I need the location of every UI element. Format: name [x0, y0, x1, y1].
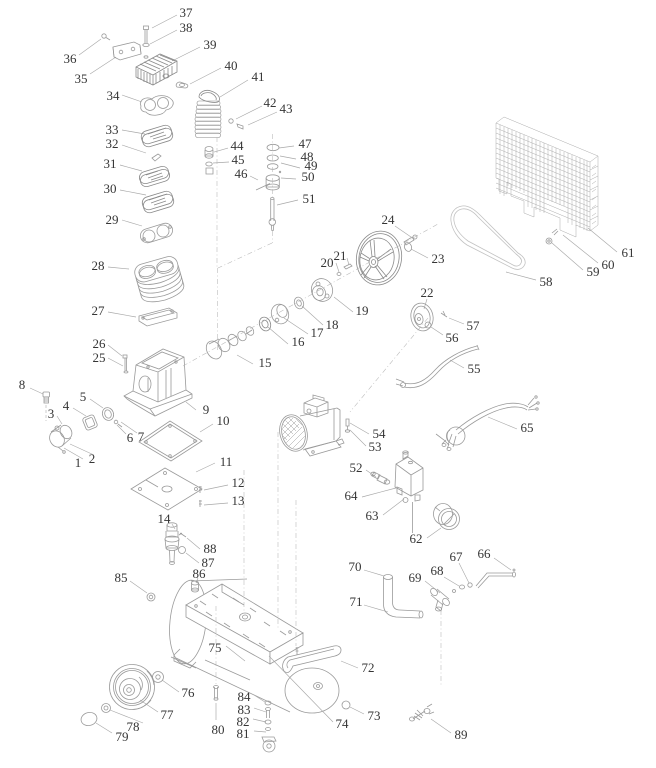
svg-text:38: 38 — [180, 20, 193, 35]
svg-text:10: 10 — [217, 413, 230, 428]
svg-text:69: 69 — [409, 570, 422, 585]
svg-text:52: 52 — [350, 460, 363, 475]
svg-text:9: 9 — [203, 402, 210, 417]
svg-text:12: 12 — [232, 475, 245, 490]
svg-text:70: 70 — [349, 559, 362, 574]
svg-text:35: 35 — [75, 71, 88, 86]
svg-text:8: 8 — [19, 377, 26, 392]
svg-text:4: 4 — [63, 398, 70, 413]
svg-text:6: 6 — [127, 430, 134, 445]
svg-text:23: 23 — [432, 251, 445, 266]
svg-text:81: 81 — [237, 726, 250, 741]
svg-text:33: 33 — [106, 122, 119, 137]
svg-text:31: 31 — [104, 156, 117, 171]
svg-text:61: 61 — [622, 245, 635, 260]
svg-text:66: 66 — [478, 546, 492, 561]
svg-text:36: 36 — [64, 51, 78, 66]
svg-text:3: 3 — [48, 406, 55, 421]
svg-text:88: 88 — [204, 541, 217, 556]
svg-text:56: 56 — [446, 330, 460, 345]
svg-text:74: 74 — [336, 716, 350, 731]
svg-text:29: 29 — [106, 212, 119, 227]
svg-text:76: 76 — [182, 685, 196, 700]
svg-text:27: 27 — [92, 303, 106, 318]
svg-text:68: 68 — [431, 563, 444, 578]
svg-text:26: 26 — [93, 336, 107, 351]
svg-text:50: 50 — [302, 169, 315, 184]
svg-text:25: 25 — [93, 350, 106, 365]
svg-text:17: 17 — [311, 325, 325, 340]
svg-text:59: 59 — [587, 264, 600, 279]
svg-text:58: 58 — [540, 274, 553, 289]
svg-text:30: 30 — [104, 181, 117, 196]
svg-text:62: 62 — [410, 531, 423, 546]
svg-text:60: 60 — [602, 257, 615, 272]
svg-text:55: 55 — [468, 361, 481, 376]
svg-text:28: 28 — [92, 258, 105, 273]
svg-text:22: 22 — [421, 285, 434, 300]
svg-text:39: 39 — [204, 37, 217, 52]
svg-text:5: 5 — [80, 389, 87, 404]
svg-text:14: 14 — [158, 511, 172, 526]
svg-text:45: 45 — [232, 152, 245, 167]
svg-text:72: 72 — [362, 660, 375, 675]
svg-text:75: 75 — [209, 640, 222, 655]
svg-text:63: 63 — [366, 508, 379, 523]
svg-text:15: 15 — [259, 355, 272, 370]
svg-text:65: 65 — [521, 420, 534, 435]
svg-text:40: 40 — [225, 58, 238, 73]
svg-text:21: 21 — [334, 248, 347, 263]
svg-text:53: 53 — [369, 439, 382, 454]
svg-text:71: 71 — [350, 594, 363, 609]
svg-text:16: 16 — [292, 334, 306, 349]
svg-text:13: 13 — [232, 493, 245, 508]
svg-text:24: 24 — [382, 212, 396, 227]
svg-text:44: 44 — [231, 138, 245, 153]
svg-text:7: 7 — [138, 429, 145, 444]
svg-text:41: 41 — [252, 69, 265, 84]
svg-text:42: 42 — [264, 95, 277, 110]
svg-text:20: 20 — [321, 255, 334, 270]
svg-text:34: 34 — [107, 88, 121, 103]
svg-text:46: 46 — [235, 166, 249, 181]
svg-text:18: 18 — [326, 317, 339, 332]
svg-text:85: 85 — [115, 570, 128, 585]
svg-text:19: 19 — [356, 303, 369, 318]
svg-text:1: 1 — [75, 455, 82, 470]
svg-text:57: 57 — [467, 318, 481, 333]
svg-text:2: 2 — [89, 451, 96, 466]
svg-text:73: 73 — [368, 708, 381, 723]
svg-text:79: 79 — [116, 729, 129, 744]
svg-text:11: 11 — [220, 454, 233, 469]
svg-text:51: 51 — [303, 191, 316, 206]
svg-text:89: 89 — [455, 727, 468, 742]
svg-text:37: 37 — [180, 5, 194, 20]
svg-text:86: 86 — [193, 566, 207, 581]
svg-text:67: 67 — [450, 549, 464, 564]
svg-text:32: 32 — [106, 136, 119, 151]
svg-text:80: 80 — [212, 722, 225, 737]
svg-text:77: 77 — [161, 707, 175, 722]
svg-text:43: 43 — [280, 101, 293, 116]
svg-text:64: 64 — [345, 488, 359, 503]
